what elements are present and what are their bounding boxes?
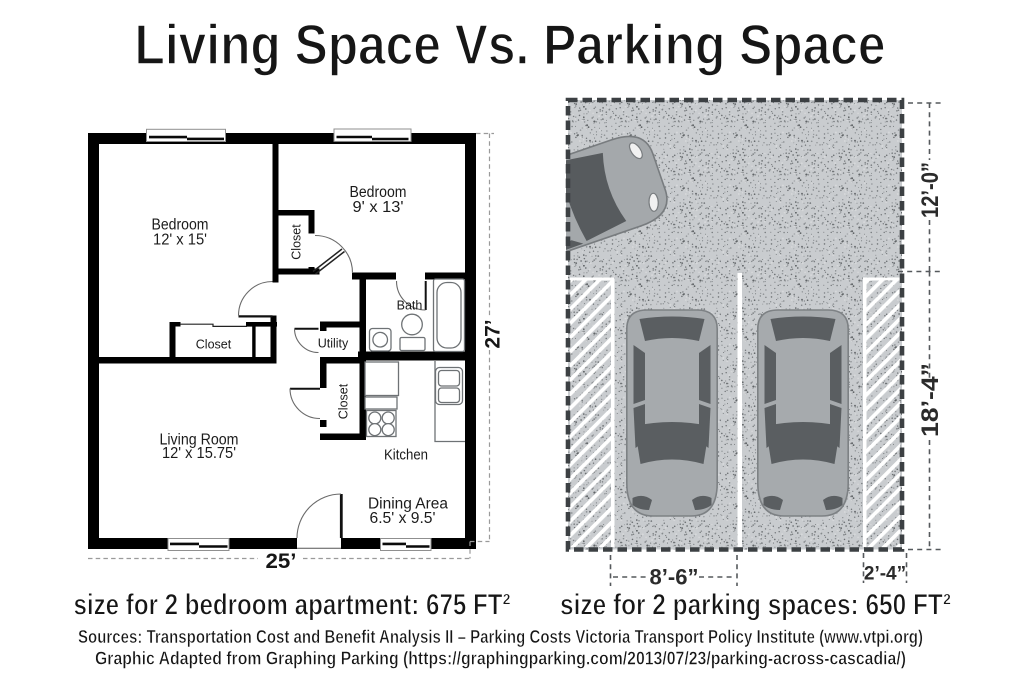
- svg-text:Kitchen: Kitchen: [384, 447, 428, 464]
- svg-text:18’-4”: 18’-4”: [917, 363, 944, 437]
- svg-text:size for 2 parking spaces: 650: size for 2 parking spaces: 650 FT²: [560, 589, 951, 622]
- svg-text:Living Space Vs. Parking Space: Living Space Vs. Parking Space: [135, 13, 886, 77]
- svg-text:Bath: Bath: [397, 299, 423, 313]
- svg-text:Utility: Utility: [318, 337, 349, 351]
- svg-text:Graphic Adapted from Graphing: Graphic Adapted from Graphing Parking (h…: [95, 648, 906, 669]
- svg-text:9' x 13': 9' x 13': [353, 199, 404, 216]
- svg-text:Closet: Closet: [196, 338, 232, 352]
- svg-text:12' x 15.75': 12' x 15.75': [162, 445, 236, 462]
- svg-text:27’: 27’: [482, 319, 505, 348]
- svg-text:6.5' x 9.5': 6.5' x 9.5': [370, 510, 436, 527]
- svg-text:Closet: Closet: [337, 383, 351, 419]
- svg-text:25’: 25’: [266, 550, 297, 573]
- svg-text:8’-6”: 8’-6”: [650, 565, 699, 590]
- svg-text:2’-4”: 2’-4”: [864, 564, 906, 585]
- svg-text:12' x 15': 12' x 15': [153, 232, 207, 249]
- svg-text:size for 2 bedroom apartment:: size for 2 bedroom apartment: 675 FT²: [74, 589, 511, 622]
- svg-text:Sources: Transportation Cost a: Sources: Transportation Cost and Benefit…: [78, 626, 923, 647]
- svg-text:Closet: Closet: [290, 224, 304, 260]
- svg-text:12’-0”: 12’-0”: [917, 162, 944, 218]
